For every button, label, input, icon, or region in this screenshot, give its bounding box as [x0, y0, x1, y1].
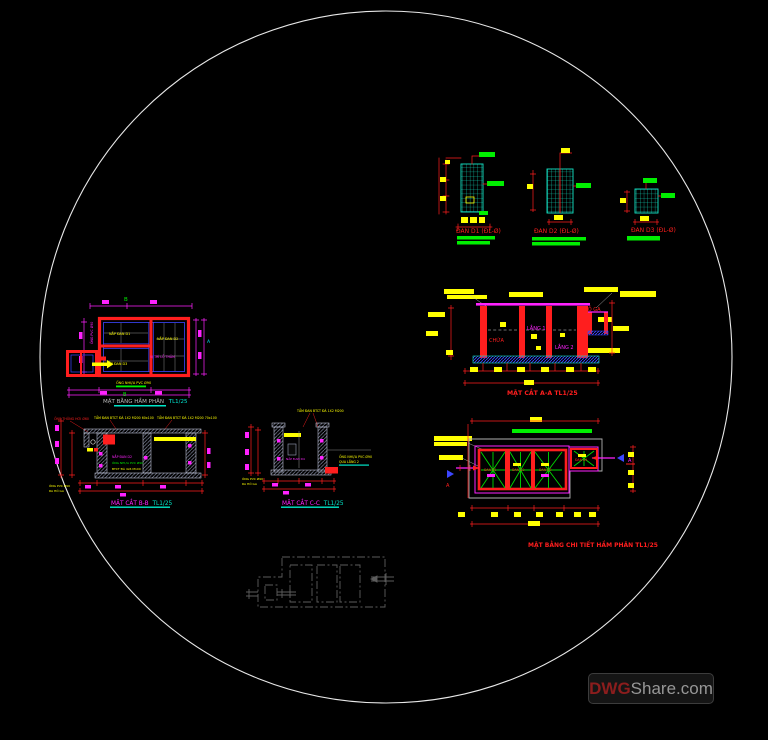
inlet-block	[103, 435, 115, 445]
slab-detail-d3: ĐAN D3 (ĐL-Ø)	[620, 178, 676, 241]
rebar-grid-d3	[635, 189, 658, 213]
section-marker-left: A	[446, 483, 450, 489]
section-bb-title: MẶT CẮT B-B	[111, 499, 149, 507]
slab-label-d1: ĐAN D1	[484, 468, 496, 472]
note-left-1: ỐNG PVC Ø90	[242, 476, 263, 481]
slab-label-d2: ĐAN D2	[512, 468, 524, 472]
walls-hatched	[271, 423, 331, 475]
plan-main-ham-phan: B NẮP ĐAN D1 NẮP ĐAN D2 NẮP ĐA	[67, 297, 211, 407]
outlet-block	[325, 467, 338, 474]
section-c-c: TẤM ĐAN BTCT ĐÁ 1X2 M200 NẮP ĐAN D4 ỐNG …	[242, 408, 372, 508]
pipe-note: ỐNG NHỰA PVC Ø90	[116, 380, 151, 385]
ghost-plan-outline	[258, 557, 385, 607]
outlet-note-1: ỐNG PVC Ø90	[49, 483, 70, 488]
note-right-1: ỐNG NHỰA PVC Ø90	[339, 454, 372, 459]
base-slab-hatch	[473, 356, 599, 363]
section-marker-a: A	[207, 339, 211, 345]
section-bb-scale: TL1/25	[151, 501, 172, 507]
slab-note-1: TẤM ĐAN BTCT ĐÁ 1X2 M200 60x100	[93, 415, 154, 420]
slab-d1-title: ĐAN D1 (ĐL-Ø)	[456, 228, 501, 235]
lid-label-2: NẮP ĐAN D2	[157, 336, 178, 341]
slab-d3-title: ĐAN D3 (ĐL-Ø)	[631, 227, 676, 234]
svg-text:MẶT CẮT B-B TL1/25: MẶT CẮT B-B TL1/25	[111, 499, 173, 507]
watermark-suffix: Share.com	[631, 679, 713, 699]
lid-label: NẮP ĐAN D2	[112, 454, 132, 459]
slab-label-d4: ĐAN D4	[575, 458, 587, 462]
slab-note: TẤM ĐAN BTCT ĐÁ 1X2 M200	[296, 408, 344, 413]
svg-text:MẶT CẮT C-C TL1/25: MẶT CẮT C-C TL1/25	[282, 499, 344, 507]
section-marker-right: A	[628, 458, 632, 464]
vent-note: ỐNG PVC Ø90	[89, 322, 94, 344]
section-arrow-left	[447, 470, 454, 478]
vent-pipe-symbol	[91, 440, 95, 444]
axis-label-bottom: B	[123, 392, 127, 398]
slab-detail-d1: ĐAN D1 (ĐL-Ø)	[439, 152, 504, 245]
callout-notes	[426, 287, 656, 353]
lid-label-1: NẮP ĐAN D1	[109, 331, 130, 336]
section-b-b: ỐNG THÔNG HƠI Ø60 TẤM ĐAN BTCT ĐÁ 1X2 M2…	[49, 415, 217, 508]
plan-main-title: MẶT BẰNG HẦM PHÂN	[103, 397, 164, 405]
note-right-2: QUA LẮNG 2	[339, 459, 359, 464]
slab-d2-title: ĐAN D2 (ĐL-Ø)	[534, 228, 579, 235]
plan-detail-ham-phan: ĐAN D1 ĐAN D2 ĐAN D3 ĐAN D4 A A	[434, 417, 658, 549]
bracing-lines	[481, 451, 594, 488]
axis-label-top: B	[124, 297, 128, 303]
base-note: BTCT ĐÁ 4x6 M100	[112, 466, 141, 471]
inlet-arrow	[92, 363, 107, 367]
callout-notes	[434, 417, 542, 460]
drawing-boundary-circle	[40, 11, 732, 703]
section-cc-scale: TL1/25	[323, 501, 344, 507]
slab-label-d3: ĐAN D3	[539, 468, 551, 472]
section-aa-title: MẶT CẮT A-A TL1/25	[507, 387, 578, 397]
plan-detail-title: MẶT BẰNG CHI TIẾT HẦM PHÂN TL1/25	[528, 540, 658, 549]
section-a-a: CHỨA LẮNG 1 LẮNG 2 HỐ GA MẶT CẮT A-A TL1…	[426, 287, 656, 397]
cad-canvas: ĐAN D1 (ĐL-Ø) ĐAN D2 (ĐL-Ø) ĐAN D3 (ĐL-Ø…	[0, 0, 768, 740]
slab-note-2: TẤM ĐAN BTCT ĐÁ 1X2 M200 70x100	[156, 415, 217, 420]
pipe-label: ỐNG NHỰA PVC Ø90	[112, 460, 143, 465]
vent-note: ỐNG THÔNG HƠI Ø60	[54, 416, 89, 421]
chamber-label-hoga: HỐ GA	[584, 305, 601, 313]
rebar-grid-d1	[461, 164, 483, 212]
chamber-label-lang2: LẮNG 2	[555, 343, 574, 351]
note-left-2: RA HỐ GA	[242, 481, 258, 486]
section-arrow-right	[617, 454, 624, 462]
lid-label: NẮP ĐAN D4	[286, 456, 305, 461]
chamber-label-chua: CHỨA	[489, 337, 505, 344]
svg-text:MẶT BẰNG HẦM PHÂN TL1/25: MẶT BẰNG HẦM PHÂN TL1/25	[103, 397, 188, 405]
hole-note: VỊ TRÍ LỖ THĂM	[150, 354, 175, 359]
cad-sheet: ĐAN D1 (ĐL-Ø) ĐAN D2 (ĐL-Ø) ĐAN D3 (ĐL-Ø…	[0, 0, 768, 740]
slab-detail-d2: ĐAN D2 (ĐL-Ø)	[527, 148, 591, 246]
chamber-label-lang1: LẮNG 1	[527, 324, 546, 332]
watermark-badge: DWGShare.com	[588, 673, 714, 704]
section-cc-title: MẶT CẮT C-C	[282, 499, 320, 507]
plan-main-scale: TL1/25	[168, 399, 188, 405]
watermark-prefix: DWG	[589, 679, 631, 699]
outlet-note-2: RA HỐ GA	[49, 488, 65, 493]
